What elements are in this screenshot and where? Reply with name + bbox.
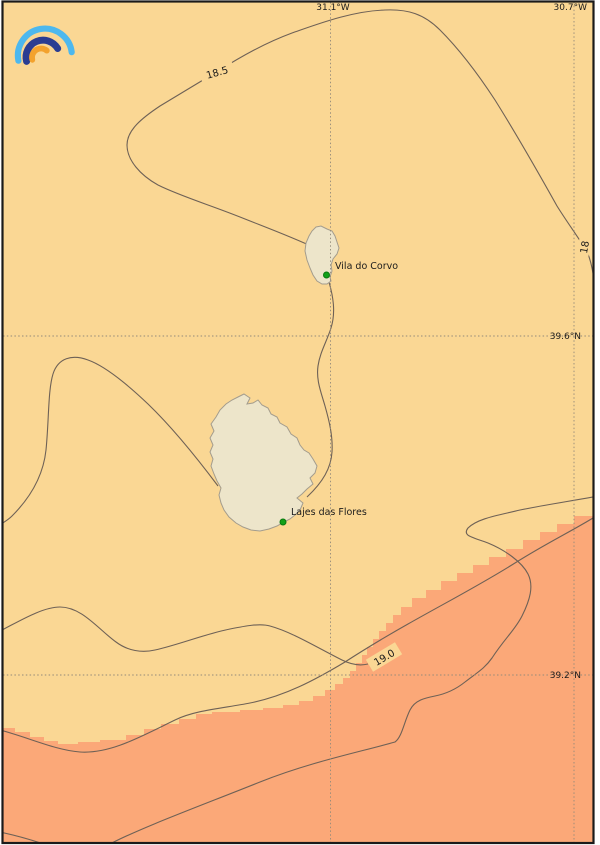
vila-do-corvo-marker	[324, 272, 330, 278]
map-window: 18.5 18 19.0 Vila do Corvo Lajes das Flo…	[0, 0, 600, 845]
sst-map-canvas: 18.5 18 19.0 Vila do Corvo Lajes das Flo…	[0, 0, 600, 845]
lat-label-39-2n: 39.2°N	[550, 671, 581, 681]
isotherm-18-label: 18	[579, 240, 592, 254]
lat-label-39-6n: 39.6°N	[550, 332, 581, 342]
lon-label-30-7w: 30.7°W	[554, 3, 588, 13]
vila-do-corvo-label: Vila do Corvo	[335, 261, 398, 272]
lajes-das-flores-marker	[280, 519, 286, 525]
lon-label-31-1w: 31.1°W	[316, 3, 350, 13]
lajes-das-flores-label: Lajes das Flores	[291, 507, 367, 518]
